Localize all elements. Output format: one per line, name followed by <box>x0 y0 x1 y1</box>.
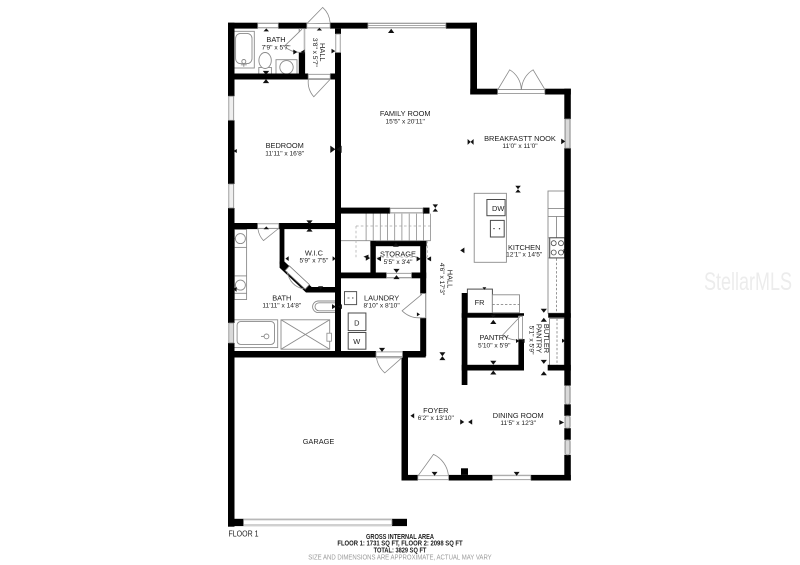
svg-text:5'9" x 7'5": 5'9" x 7'5" <box>299 257 328 264</box>
svg-text:PANTRY: PANTRY <box>480 333 509 342</box>
svg-text:D: D <box>354 318 359 327</box>
svg-text:BATH: BATH <box>266 35 285 44</box>
svg-text:KITCHEN: KITCHEN <box>508 243 540 252</box>
svg-text:W.I.C: W.I.C <box>305 248 324 257</box>
svg-text:5'10" x 5'9": 5'10" x 5'9" <box>478 342 511 349</box>
svg-text:5'1" x 5'9": 5'1" x 5'9" <box>527 326 534 355</box>
svg-text:11'0" x 11'0": 11'0" x 11'0" <box>502 143 538 150</box>
svg-text:BEDROOM: BEDROOM <box>266 141 304 150</box>
svg-text:12'1" x 14'5": 12'1" x 14'5" <box>506 252 543 259</box>
svg-text:6'2" x 13'10": 6'2" x 13'10" <box>418 415 455 422</box>
svg-text:8'10" x 8'10": 8'10" x 8'10" <box>364 303 401 310</box>
svg-text:BATH: BATH <box>272 294 291 303</box>
svg-text:FAMILY ROOM: FAMILY ROOM <box>380 109 431 118</box>
svg-text:11'5" x 12'3": 11'5" x 12'3" <box>500 420 536 427</box>
svg-text:StellarMLS: StellarMLS <box>704 268 792 296</box>
svg-text:FR: FR <box>475 298 485 307</box>
svg-text:5'5" x 3'4": 5'5" x 3'4" <box>384 259 413 266</box>
svg-text:DINING ROOM: DINING ROOM <box>493 411 544 420</box>
svg-text:FLOOR 1: FLOOR 1 <box>229 530 259 539</box>
svg-text:7'9" x 5'7": 7'9" x 5'7" <box>262 45 291 52</box>
svg-text:TOTAL: 3829 SQ FT: TOTAL: 3829 SQ FT <box>374 547 427 554</box>
svg-text:W: W <box>353 337 360 346</box>
svg-text:SIZE AND DIMENSIONS ARE APPROX: SIZE AND DIMENSIONS ARE APPROXIMATE, ACT… <box>308 555 492 562</box>
svg-text:FOYER: FOYER <box>423 406 448 415</box>
svg-text:11'11" x 16'8": 11'11" x 16'8" <box>265 151 305 158</box>
svg-text:HALL: HALL <box>445 270 454 289</box>
svg-text:3'8" x 5'7": 3'8" x 5'7" <box>311 38 318 67</box>
svg-text:11'11" x 14'8": 11'11" x 14'8" <box>262 303 302 310</box>
svg-text:DW: DW <box>492 204 504 213</box>
svg-text:4'6" x 17'3": 4'6" x 17'3" <box>438 263 445 296</box>
svg-text:LAUNDRY: LAUNDRY <box>364 294 399 303</box>
svg-text:GARAGE: GARAGE <box>303 437 335 446</box>
svg-text:PANTRY: PANTRY <box>535 324 544 353</box>
svg-text:BREAKFASTT NOOK: BREAKFASTT NOOK <box>484 134 556 143</box>
svg-text:STORAGE: STORAGE <box>380 250 416 259</box>
svg-text:HALL: HALL <box>318 43 327 62</box>
svg-text:15'5" x 20'11": 15'5" x 20'11" <box>386 119 426 126</box>
